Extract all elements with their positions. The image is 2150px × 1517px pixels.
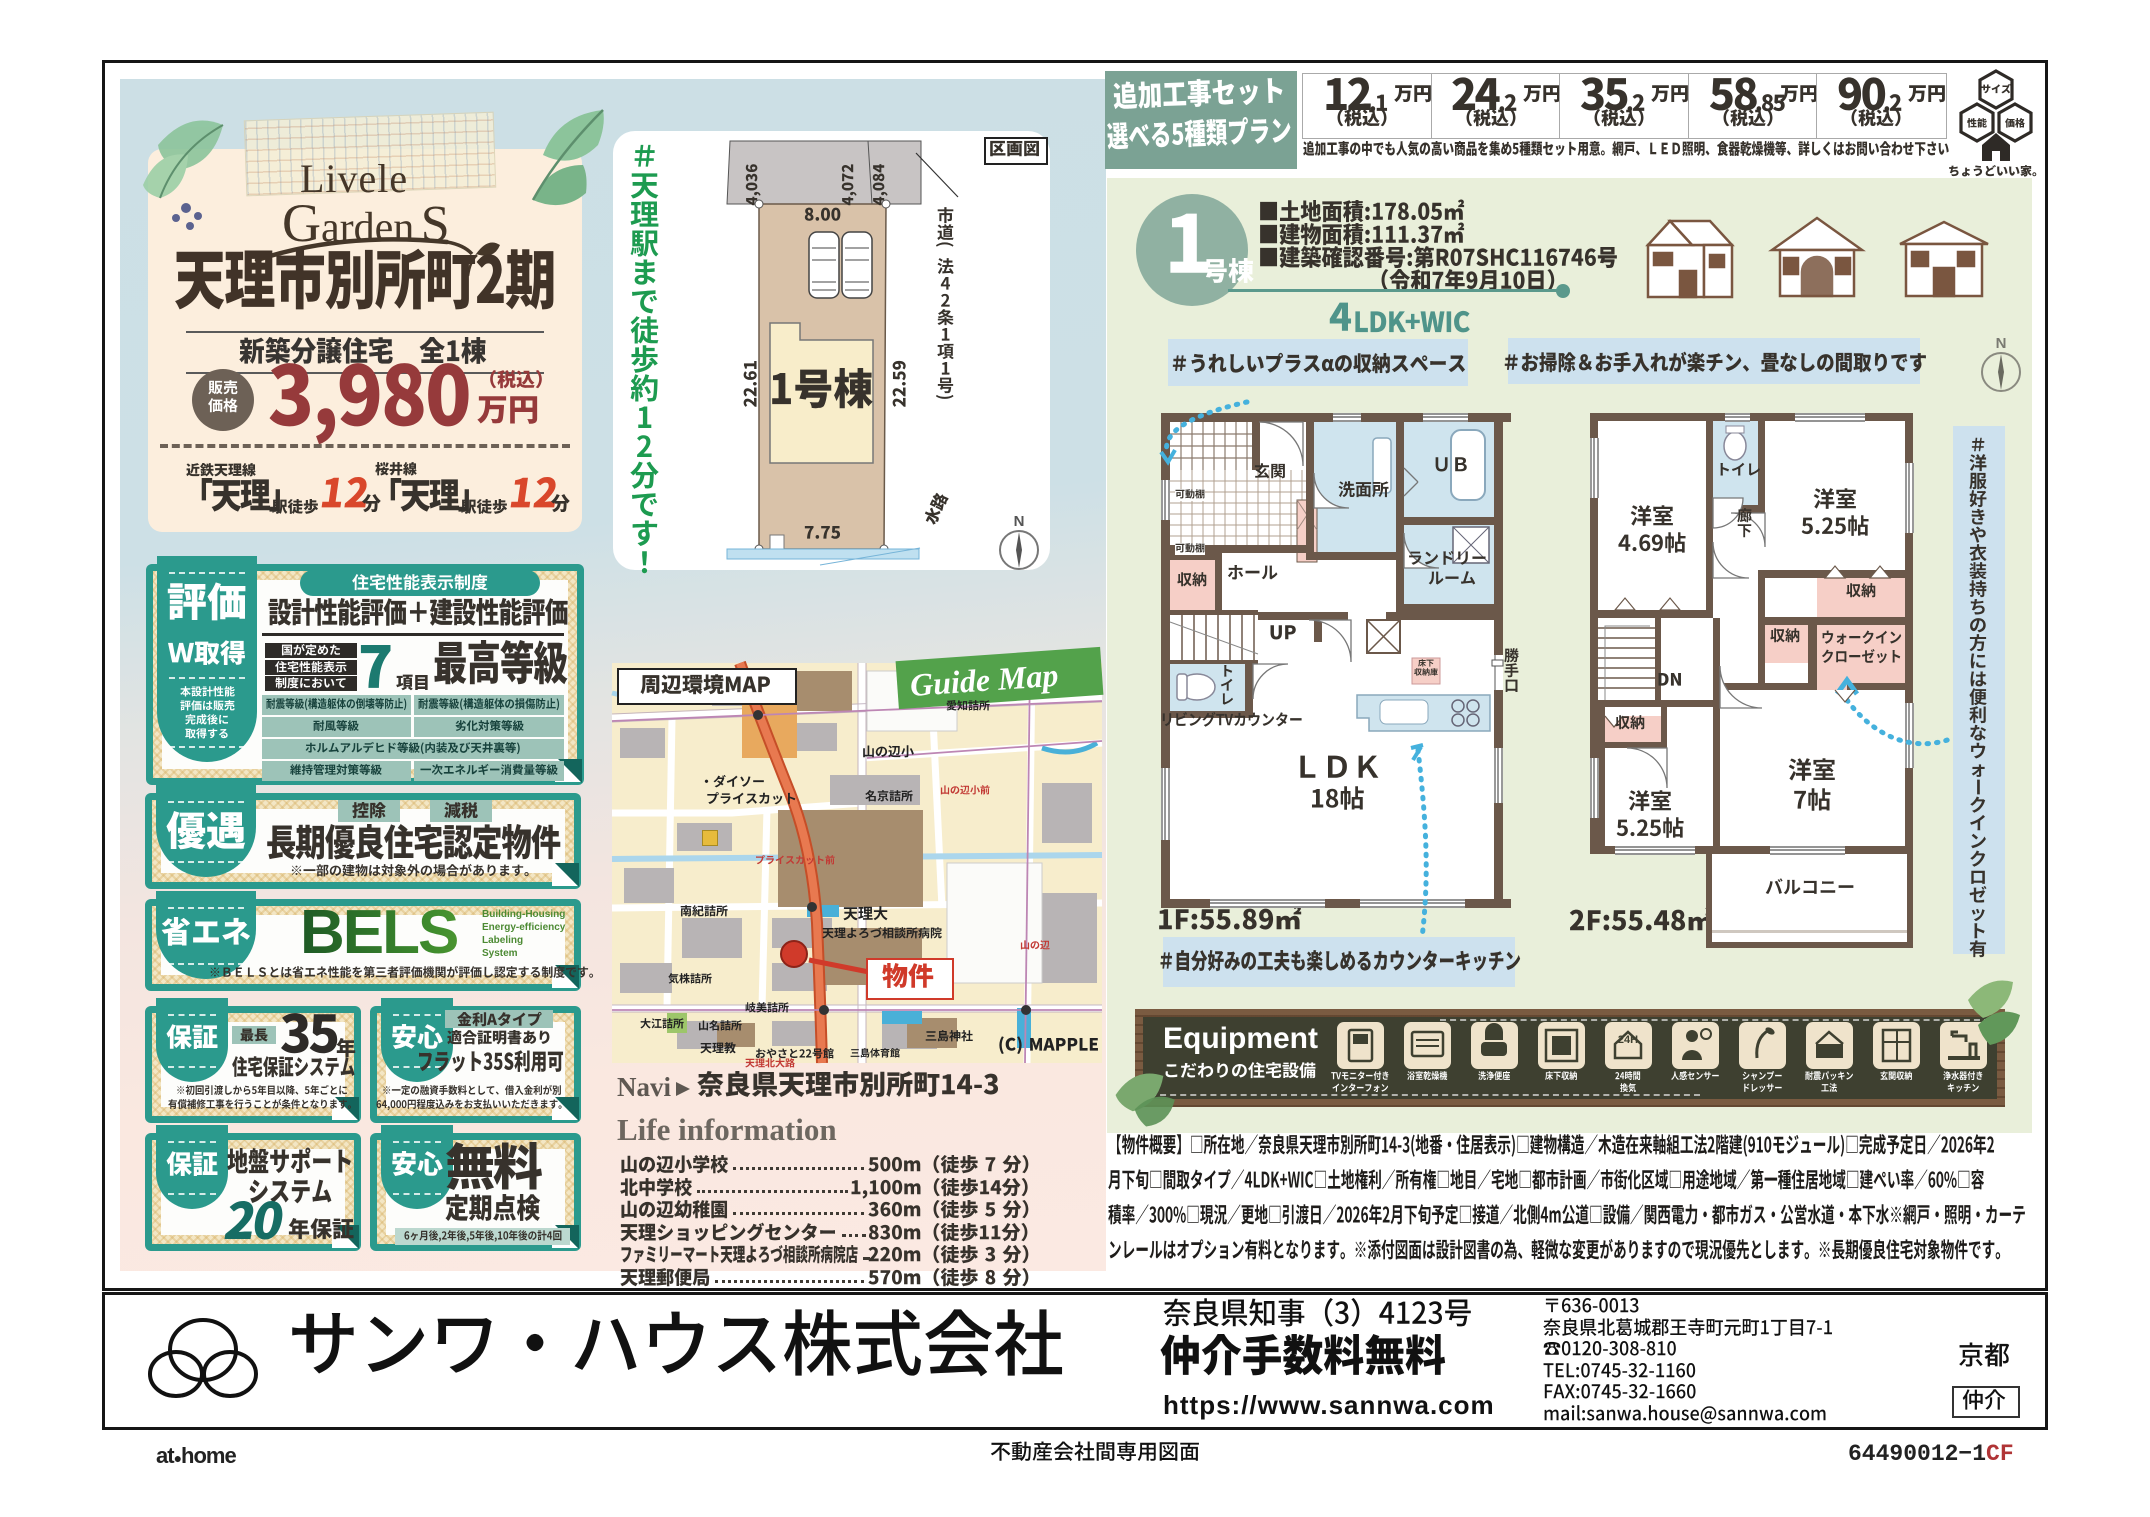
svg-text:24H: 24H <box>1618 1034 1638 1046</box>
svg-text:N: N <box>1014 513 1025 530</box>
svg-text:N: N <box>1996 335 2007 352</box>
